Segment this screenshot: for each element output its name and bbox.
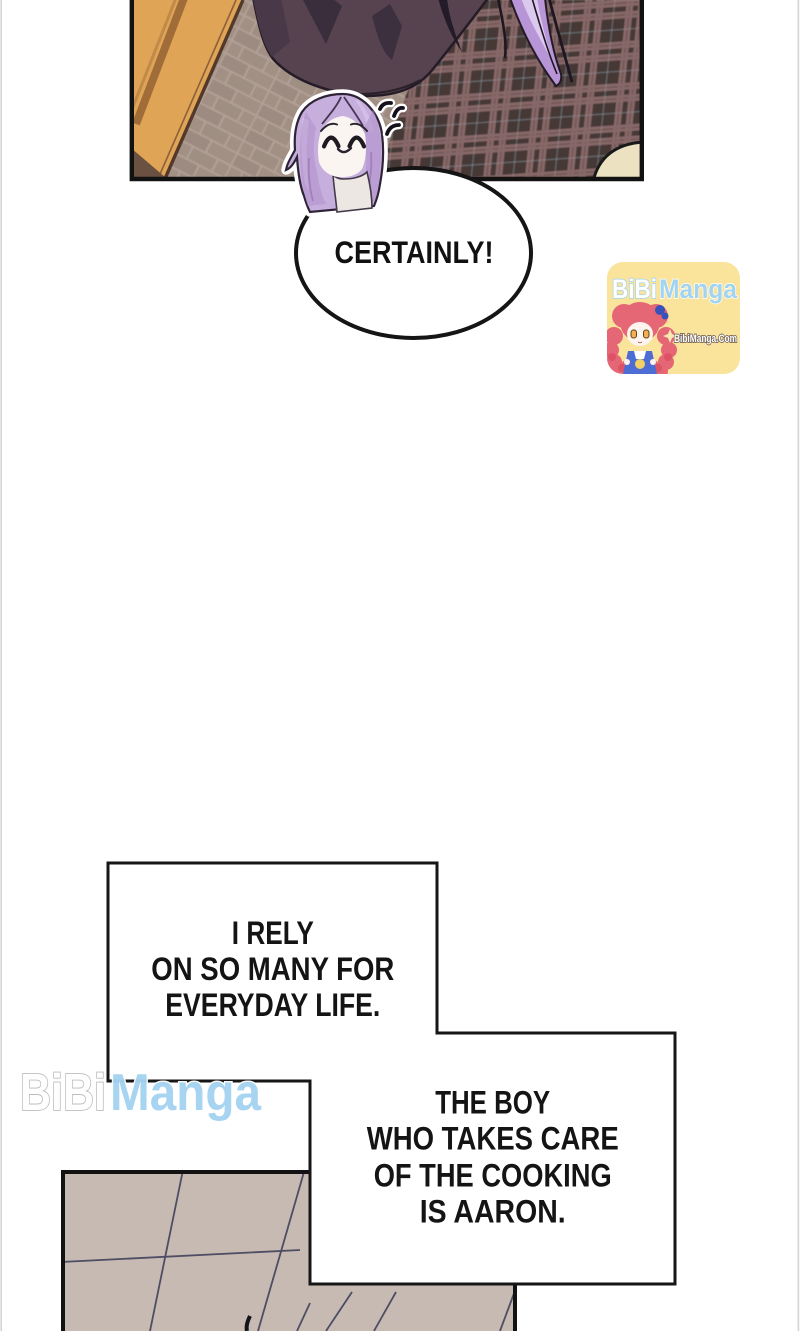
svg-text:THE BOY: THE BOY [435, 1085, 550, 1121]
svg-text:BiBi: BiBi [612, 274, 657, 304]
svg-text:IS AARON.: IS AARON. [420, 1194, 566, 1230]
svg-text:Manga: Manga [110, 1064, 262, 1122]
svg-text:ON SO MANY FOR: ON SO MANY FOR [151, 951, 394, 987]
svg-text:WHO TAKES CARE: WHO TAKES CARE [367, 1121, 619, 1157]
svg-text:Manga: Manga [659, 274, 738, 304]
svg-text:I RELY: I RELY [232, 915, 314, 951]
svg-text:BibiManga.Com: BibiManga.Com [674, 333, 737, 345]
svg-text:EVERYDAY LIFE.: EVERYDAY LIFE. [165, 987, 380, 1023]
svg-text:CERTAINLY!: CERTAINLY! [335, 234, 494, 270]
svg-text:OF THE COOKING: OF THE COOKING [374, 1157, 612, 1193]
svg-text:BiBi: BiBi [20, 1064, 106, 1122]
